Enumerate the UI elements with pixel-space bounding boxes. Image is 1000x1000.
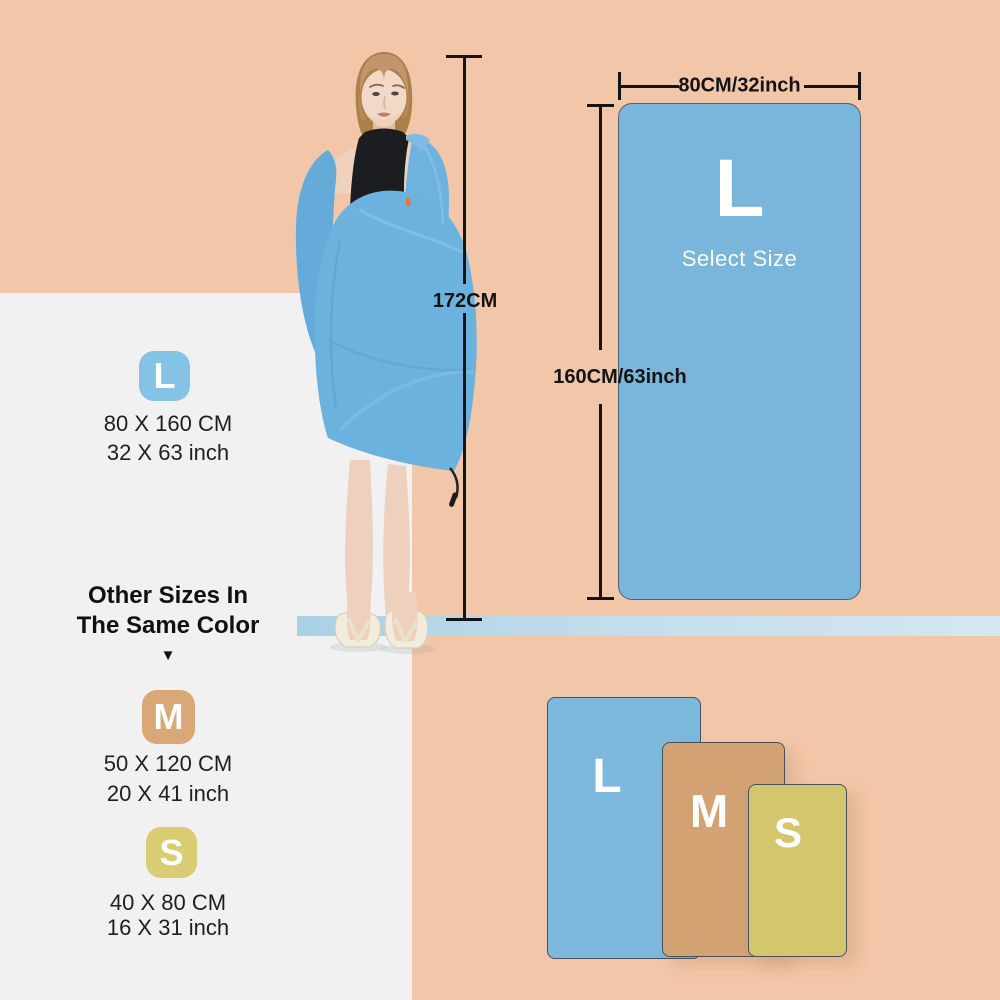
towel-width-measure: 80CM/32inch xyxy=(618,72,861,102)
triangle-down-icon: ▼ xyxy=(148,647,188,664)
size-l-cm: 80 X 160 CM xyxy=(40,411,296,437)
size-s-cm: 40 X 80 CM xyxy=(40,890,296,916)
compare-letter-l: L xyxy=(592,753,621,801)
size-chart-infographic: { "model_figure": { "height_label": "172… xyxy=(0,0,1000,1000)
towel-height-measure-cap-bottom xyxy=(587,597,614,600)
foot-left xyxy=(347,596,371,640)
eye xyxy=(372,92,380,96)
select-size-card[interactable]: L Select Size xyxy=(618,103,861,600)
model-photo xyxy=(270,40,510,660)
compare-rect-s: S xyxy=(748,784,847,957)
towel-height-measure-line xyxy=(599,404,602,600)
model-height-measure-line xyxy=(463,55,466,284)
size-card-letter: L xyxy=(714,148,764,230)
towel-height-measure-line xyxy=(599,104,602,350)
towel-height-label: 160CM/63inch xyxy=(540,366,700,389)
measure-line xyxy=(804,85,858,88)
model-height-measure-cap-bottom xyxy=(446,618,482,621)
measure-tick xyxy=(858,72,861,100)
model-height-measure-line xyxy=(463,313,466,620)
other-sizes-heading-line1: Other Sizes In xyxy=(18,582,318,610)
towel-wrap xyxy=(315,191,477,471)
compare-letter-s: S xyxy=(774,812,802,854)
size-s-inch: 16 X 31 inch xyxy=(40,915,296,941)
size-l-inch: 32 X 63 inch xyxy=(40,440,296,466)
model-height-label: 172CM xyxy=(425,290,505,313)
size-badge-m-letter: M xyxy=(154,696,184,738)
towel-width-label: 80CM/32inch xyxy=(678,75,800,98)
size-card-select-label: Select Size xyxy=(682,246,798,272)
size-badge-s-letter: S xyxy=(159,832,183,874)
size-badge-s[interactable]: S xyxy=(146,827,197,878)
eye xyxy=(391,92,399,96)
drawstring-toggle xyxy=(448,492,458,508)
measure-line xyxy=(621,85,679,88)
brand-tag xyxy=(406,198,411,206)
foot-right xyxy=(392,592,418,641)
size-m-cm: 50 X 120 CM xyxy=(40,751,296,777)
size-badge-l[interactable]: L xyxy=(139,351,190,401)
size-m-inch: 20 X 41 inch xyxy=(40,781,296,807)
compare-letter-m: M xyxy=(690,788,728,834)
size-badge-m[interactable]: M xyxy=(142,690,195,744)
size-badge-l-letter: L xyxy=(154,355,176,397)
other-sizes-heading-line2: The Same Color xyxy=(18,612,318,640)
